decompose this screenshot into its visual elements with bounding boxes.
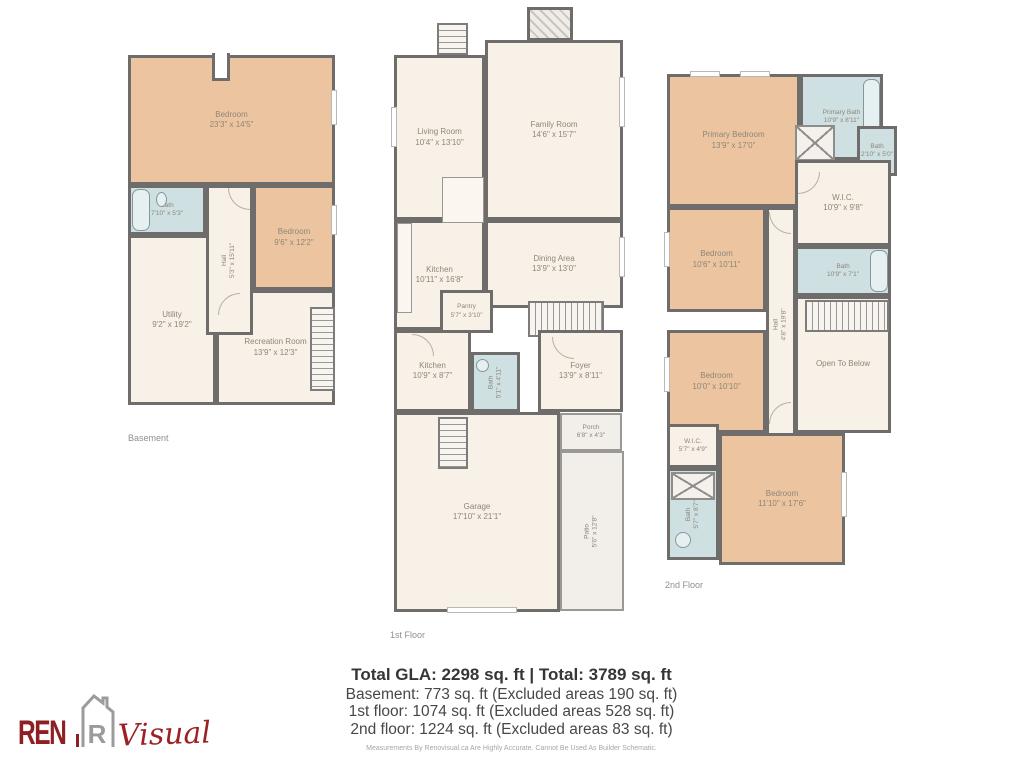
- room-dims: 10'9" x 7'1": [827, 271, 859, 279]
- room-foyer: Foyer 13'9" x 8'11": [538, 330, 623, 412]
- window: [331, 205, 337, 235]
- logo-visual-text: Visual: [117, 719, 211, 749]
- room-label: Pantry: [457, 303, 476, 311]
- room-dims: 9'6" x 12'2": [274, 238, 313, 248]
- toilet-icon: [156, 192, 167, 207]
- room-label: Kitchen: [419, 361, 446, 371]
- room-dims: 9'2" x 19'2": [152, 320, 191, 330]
- floor-caption-first: 1st Floor: [390, 630, 425, 640]
- logo-ren-text: REN: [18, 719, 65, 748]
- room-dims: 10'9" x 8'7": [413, 371, 452, 381]
- room-label: Bedroom: [766, 489, 798, 499]
- room-patio: Patio 5'6" x 12'8": [560, 451, 624, 611]
- stairs-icon: [805, 300, 889, 332]
- room-dims: 17'10" x 21'1": [453, 512, 501, 522]
- kitchen-counter: [397, 223, 412, 313]
- stairs-icon: [310, 307, 335, 391]
- room-label: Bath: [870, 143, 883, 151]
- basement-plan: Bedroom 23'3" x 14'5" Utility 9'2" x 19'…: [128, 55, 340, 455]
- window: [690, 71, 720, 77]
- window: [664, 357, 670, 392]
- floor-caption-basement: Basement: [128, 433, 169, 443]
- room-dims: 13'9" x 12'3": [254, 348, 298, 358]
- room-basement-bedroom: Bedroom 9'6" x 12'2": [253, 185, 335, 290]
- room-dims: 7'10" x 5'3": [151, 210, 183, 218]
- room-dims: 10'11" x 16'8": [416, 275, 464, 285]
- room-bedroom2: Bedroom 10'6" x 10'11": [667, 207, 766, 312]
- bathtub-icon: [870, 250, 888, 292]
- room-dims: 5'3" x 15'11": [229, 242, 237, 277]
- room-dims: 5'7" x 4'9": [679, 446, 707, 454]
- room-dims: 11'10" x 17'6": [758, 499, 806, 509]
- room-label: Hall: [773, 319, 781, 330]
- window: [841, 472, 847, 517]
- room-label: Garage: [464, 502, 491, 512]
- room-dims: 10'6" x 10'11": [693, 260, 741, 270]
- svg-text:R: R: [87, 719, 106, 748]
- window: [391, 107, 397, 147]
- room-dims: 5'6" x 12'8": [592, 515, 600, 547]
- room-dims: 2'10" x 5'0": [861, 151, 893, 159]
- room-label: Primary Bedroom: [702, 130, 764, 140]
- floor-caption-second: 2nd Floor: [665, 580, 703, 590]
- room-label: Bath: [487, 375, 495, 388]
- room-basement-bedroom-large: Bedroom 23'3" x 14'5": [128, 55, 335, 185]
- deck-hatched-area: [527, 7, 573, 41]
- room-label: Bedroom: [700, 371, 732, 381]
- window: [331, 90, 337, 125]
- stairs-icon: [438, 417, 468, 469]
- room-bedroom3: Bedroom 10'0" x 10'10": [667, 330, 766, 433]
- room-dims: 6'8" x 4'3": [577, 432, 605, 440]
- room-label: Hall: [221, 254, 229, 265]
- room-pantry: Pantry 5'7" x 3'10": [440, 290, 493, 333]
- room-bedroom4: Bedroom 11'10" x 17'6": [719, 433, 845, 565]
- room-label: Primary Bath: [823, 109, 861, 117]
- room-dims: 10'9" x 9'8": [823, 203, 862, 213]
- room-basement-utility: Utility 9'2" x 19'2": [128, 235, 216, 405]
- shower-icon: [671, 472, 715, 500]
- room-dims: 5'7" x 3'10": [450, 312, 482, 320]
- window: [619, 237, 625, 277]
- room-porch: Porch 6'8" x 4'3": [560, 413, 622, 451]
- room-label: Dining Area: [533, 254, 574, 264]
- sink-icon: [476, 359, 489, 372]
- room-label: Porch: [583, 424, 600, 432]
- room-dims: 10'4" x 13'10": [415, 138, 463, 148]
- room-dining: Dining Area 13'9" x 13'0": [485, 220, 623, 308]
- closet-icon: [795, 125, 835, 161]
- first-floor-plan: Living Room 10'4" x 13'10" Family Room 1…: [392, 7, 632, 657]
- bathtub-icon: [132, 189, 150, 231]
- room-kitchen2: Kitchen 10'9" x 8'7": [394, 330, 471, 412]
- room-dims: 14'6" x 15'7": [532, 130, 576, 140]
- room-primary-bedroom: Primary Bedroom 13'9" x 17'0": [667, 74, 800, 207]
- window: [447, 607, 517, 613]
- room-dims: 5'7" x 8'7": [693, 500, 701, 528]
- room-label: Utility: [162, 310, 182, 320]
- window: [664, 232, 670, 267]
- second-floor-plan: Primary Bedroom 13'9" x 17'0" Primary Ba…: [665, 72, 900, 602]
- building-icon: R: [76, 692, 116, 748]
- room-wic-small: W.I.C. 5'7" x 4'9": [667, 424, 719, 468]
- room-label: Family Room: [530, 120, 577, 130]
- room-label: Foyer: [570, 361, 590, 371]
- room-label: Recreation Room: [244, 337, 306, 347]
- room-dims: 23'3" x 14'5": [210, 120, 254, 130]
- room-dims: 13'9" x 17'0": [712, 141, 756, 151]
- wall-notch: [212, 53, 230, 81]
- room-label: Bedroom: [700, 249, 732, 259]
- stairs-icon: [437, 23, 468, 55]
- total-gla-title: Total GLA: 2298 sq. ft | Total: 3789 sq.…: [0, 665, 1023, 685]
- room-dims: 5'1" x 4'11": [496, 366, 504, 398]
- room-label: Open To Below: [816, 359, 870, 369]
- room-dims: 4'8" x 19'8": [781, 308, 789, 340]
- room-label: Living Room: [417, 127, 461, 137]
- room-label: W.I.C.: [832, 193, 854, 203]
- room-label: Bedroom: [278, 227, 310, 237]
- room-label: Bath: [836, 263, 849, 271]
- room-family: Family Room 14'6" x 15'7": [485, 40, 623, 220]
- room-dims: 13'9" x 8'11": [559, 371, 602, 381]
- window: [619, 77, 625, 127]
- room-garage: Garage 17'10" x 21'1": [394, 412, 560, 612]
- kitchen-island: [442, 177, 484, 223]
- sink-icon: [675, 532, 691, 548]
- room-dims: 10'0" x 10'10": [692, 382, 740, 392]
- renvisual-logo: REN R Visual: [18, 692, 211, 748]
- room-label: Patio: [584, 524, 592, 539]
- room-dims: 13'9" x 13'0": [532, 264, 576, 274]
- room-label: Bath: [685, 507, 693, 520]
- room-label: Bedroom: [215, 110, 247, 120]
- window: [740, 71, 770, 77]
- room-label: W.I.C.: [684, 438, 702, 446]
- room-label: Kitchen: [426, 265, 453, 275]
